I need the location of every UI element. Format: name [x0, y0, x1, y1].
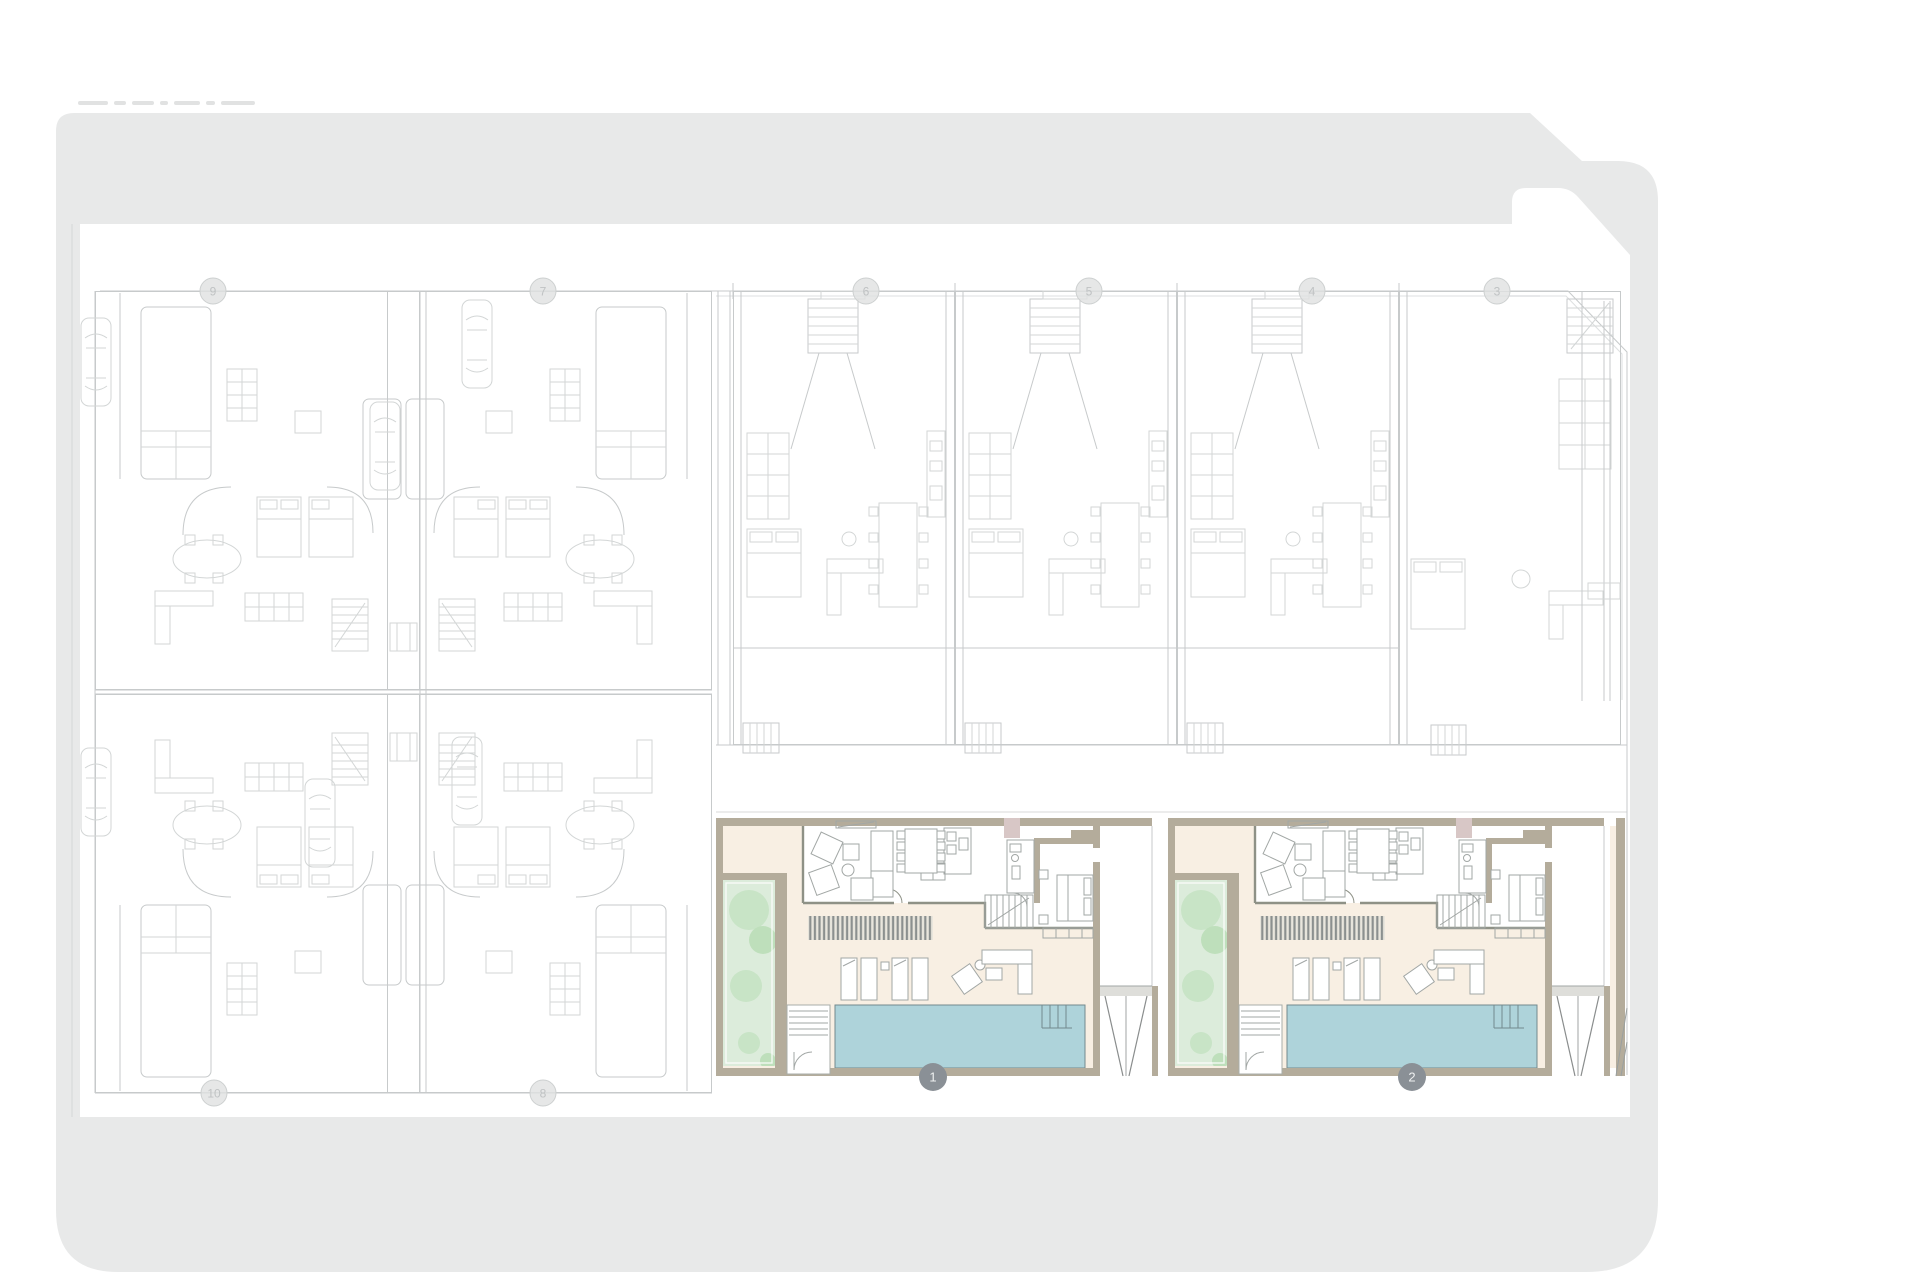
villa-unit-2-plan[interactable] — [1168, 818, 1610, 1076]
plot-right-edge — [1610, 818, 1627, 1076]
unit-marker-2[interactable]: 2 — [1398, 1063, 1426, 1091]
grayed-unit-5 — [955, 291, 1177, 753]
grayed-unit-10 — [96, 695, 420, 1093]
grayed-unit-6 — [733, 291, 955, 753]
unit-marker-1[interactable]: 1 — [919, 1063, 947, 1091]
unit-marker-4: 4 — [1299, 278, 1325, 304]
grayed-unit-4 — [1177, 291, 1399, 753]
unit-marker-8: 8 — [530, 1080, 556, 1106]
grayed-unit-8 — [388, 695, 712, 1093]
svg-text:1: 1 — [929, 1070, 936, 1085]
svg-text:10: 10 — [207, 1087, 221, 1101]
svg-text:2: 2 — [1408, 1070, 1415, 1085]
svg-text:8: 8 — [540, 1087, 547, 1101]
site-plan-canvas: 9 7 6 5 4 3 — [0, 0, 1920, 1280]
svg-text:7: 7 — [540, 285, 547, 299]
villa-unit-1-plan[interactable] — [716, 818, 1158, 1076]
unit-marker-3: 3 — [1484, 278, 1510, 304]
svg-text:3: 3 — [1494, 285, 1501, 299]
parked-cars — [81, 300, 492, 867]
unit-marker-7: 7 — [530, 278, 556, 304]
svg-text:9: 9 — [210, 285, 217, 299]
unit-marker-5: 5 — [1076, 278, 1102, 304]
unit-marker-6: 6 — [853, 278, 879, 304]
svg-text:6: 6 — [863, 285, 870, 299]
grayed-unit-7 — [388, 292, 712, 690]
unit-marker-9: 9 — [200, 278, 226, 304]
floorplan-page: 9 7 6 5 4 3 — [0, 0, 1920, 1280]
grayed-unit-9 — [96, 292, 420, 690]
grayed-unit-3 — [1400, 291, 1621, 755]
svg-text:4: 4 — [1309, 285, 1316, 299]
svg-text:5: 5 — [1086, 285, 1093, 299]
unit-marker-10: 10 — [201, 1080, 227, 1106]
grayed-rowhouse-units — [718, 291, 1621, 755]
grayed-unit-block-left — [95, 291, 712, 1093]
